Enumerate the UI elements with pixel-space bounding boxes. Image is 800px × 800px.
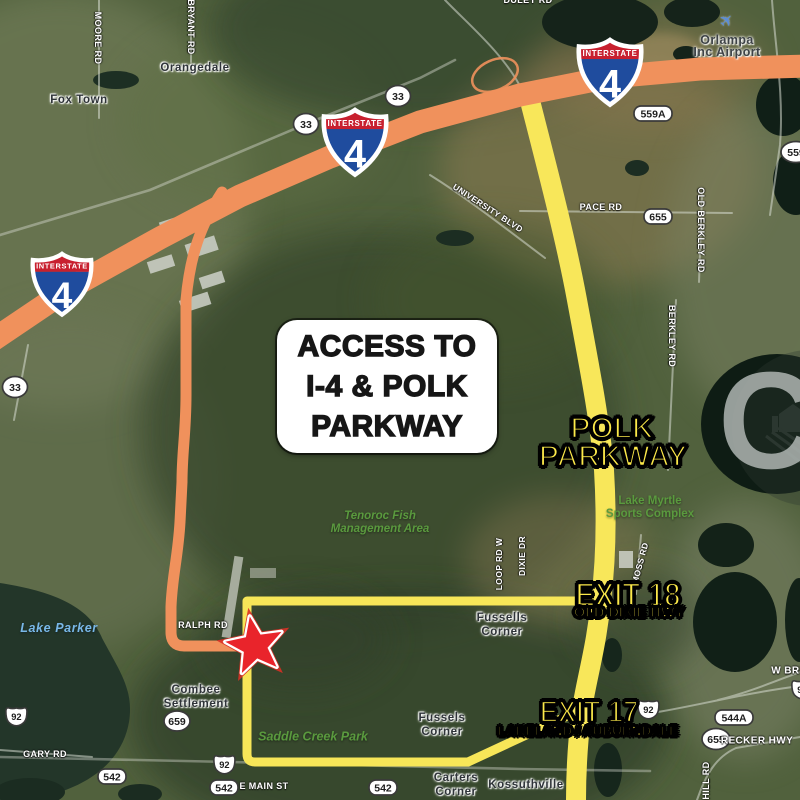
road-label-loop-rd-w: LOOP RD W	[494, 538, 504, 591]
label-line: Fussells	[477, 611, 528, 625]
interstate-number-text: 4	[344, 132, 366, 176]
road-label-gary-rd: GARY RD	[23, 749, 67, 759]
road-label-ralph-rd: RALPH RD	[178, 620, 228, 630]
place-label-fox-town: Fox Town	[50, 93, 108, 107]
interstate-banner-text: INTERSTATE	[36, 262, 88, 271]
access-callout-box: ACCESS TO I-4 & POLK PARKWAY	[277, 320, 497, 453]
road-label-moore-rd: MOORE RD	[93, 12, 103, 65]
label-line: Management Area	[331, 523, 430, 536]
svg-text:544A: 544A	[721, 713, 747, 725]
svg-text:542: 542	[374, 783, 392, 795]
label-line: Corner	[477, 625, 528, 639]
label-line: Combee	[164, 683, 229, 697]
sr544a-shield: 544A	[715, 710, 753, 725]
road-label-w-bri: W BRI	[771, 666, 800, 677]
us92-shield: 92	[214, 756, 235, 774]
water-label-lake-parker: Lake Parker	[20, 621, 98, 635]
road-label-dixie-dr: DIXIE DR	[517, 536, 527, 576]
sr542-shield: 542	[98, 769, 126, 784]
sr33-shield: 33	[3, 377, 28, 398]
access-box-line3: PARKWAY	[311, 407, 463, 447]
interstate-banner-text: INTERSTATE	[327, 119, 382, 128]
svg-text:33: 33	[9, 382, 21, 394]
svg-text:33: 33	[300, 119, 312, 131]
road-label-nhill-rd: NHILL RD	[701, 761, 711, 800]
road-label-berkley-rd: BERKLEY RD	[667, 305, 677, 367]
park-label-saddle-creek: Saddle Creek Park	[258, 731, 368, 744]
label-line: Fussels	[418, 711, 465, 725]
road-label-old-berkley-rd: OLD BERKLEY RD	[696, 187, 706, 272]
road-label-duley-rd: DULEY RD	[503, 0, 552, 5]
sr659-shield: 659	[164, 711, 190, 731]
road-label-recker-hwy: RECKER HWY	[721, 736, 793, 747]
place-label-carters-corner: CartersCorner	[434, 771, 478, 799]
satellite-map: INTERSTATE 4 INTERSTATE 4 INTERSTATE 4 3…	[0, 0, 800, 800]
svg-text:542: 542	[103, 772, 121, 784]
access-box-line2: I-4 & POLK	[306, 367, 468, 407]
road-label-e-main-st: E MAIN ST	[239, 781, 288, 791]
place-label-fussells-corner: FussellsCorner	[477, 611, 528, 639]
svg-text:659: 659	[168, 716, 186, 728]
svg-text:33: 33	[392, 91, 404, 103]
svg-text:542: 542	[215, 783, 233, 795]
sr655-shield: 655	[644, 209, 672, 224]
polk-parkway-label-line2: PARKWAY	[539, 440, 687, 474]
park-label-tenoroc: Tenoroc FishManagement Area	[331, 510, 430, 536]
exit17-subtitle: LAKELAND / AUBURNDALE	[498, 724, 678, 739]
interstate-number-text: 4	[52, 274, 73, 316]
label-line: Settlement	[164, 697, 229, 711]
svg-text:655: 655	[649, 212, 667, 224]
interstate-banner-text: INTERSTATE	[582, 49, 637, 58]
sr33-shield: 33	[386, 86, 411, 107]
svg-text:92: 92	[643, 705, 653, 715]
label-line: Lake Myrtle	[606, 495, 694, 508]
us92-shield: 92	[6, 708, 27, 726]
label-line: Corner	[418, 725, 465, 739]
svg-text:92: 92	[11, 712, 21, 722]
label-line: Inc Airport	[693, 46, 760, 58]
place-label-combee-settlement: CombeeSettlement	[164, 683, 229, 711]
road-label-pace-rd: PACE RD	[580, 202, 623, 212]
watermark-letter: C	[718, 352, 800, 490]
interstate-number-text: 4	[599, 62, 621, 106]
exit18-subtitle: OLD DIXIE HWY	[574, 605, 684, 621]
label-line: Carters	[434, 771, 478, 785]
place-label-fussels-corner: FusselsCorner	[418, 711, 465, 739]
sr542-shield: 542	[369, 780, 397, 795]
label-line: Corner	[434, 785, 478, 799]
sr33-shield: 33	[294, 114, 319, 135]
place-label-orangedale: Orangedale	[160, 61, 229, 75]
svg-text:559: 559	[787, 147, 800, 159]
label-line: Tenoroc Fish	[331, 510, 430, 523]
road-label-bryant-rd: BRYANT RD	[186, 0, 196, 55]
sr559a-shield: 559A	[634, 106, 672, 121]
us92-shield: 92	[638, 701, 659, 719]
sr542-shield: 542	[210, 780, 238, 795]
label-line: Sports Complex	[606, 508, 694, 521]
park-label-lake-myrtle: Lake MyrtleSports Complex	[606, 495, 694, 521]
airport-label: OrlampaInc Airport	[693, 34, 760, 58]
svg-text:559A: 559A	[640, 109, 666, 121]
svg-text:92: 92	[219, 760, 229, 770]
place-label-kossuthville: Kossuthville	[488, 778, 564, 792]
access-box-line1: ACCESS TO	[298, 327, 477, 367]
